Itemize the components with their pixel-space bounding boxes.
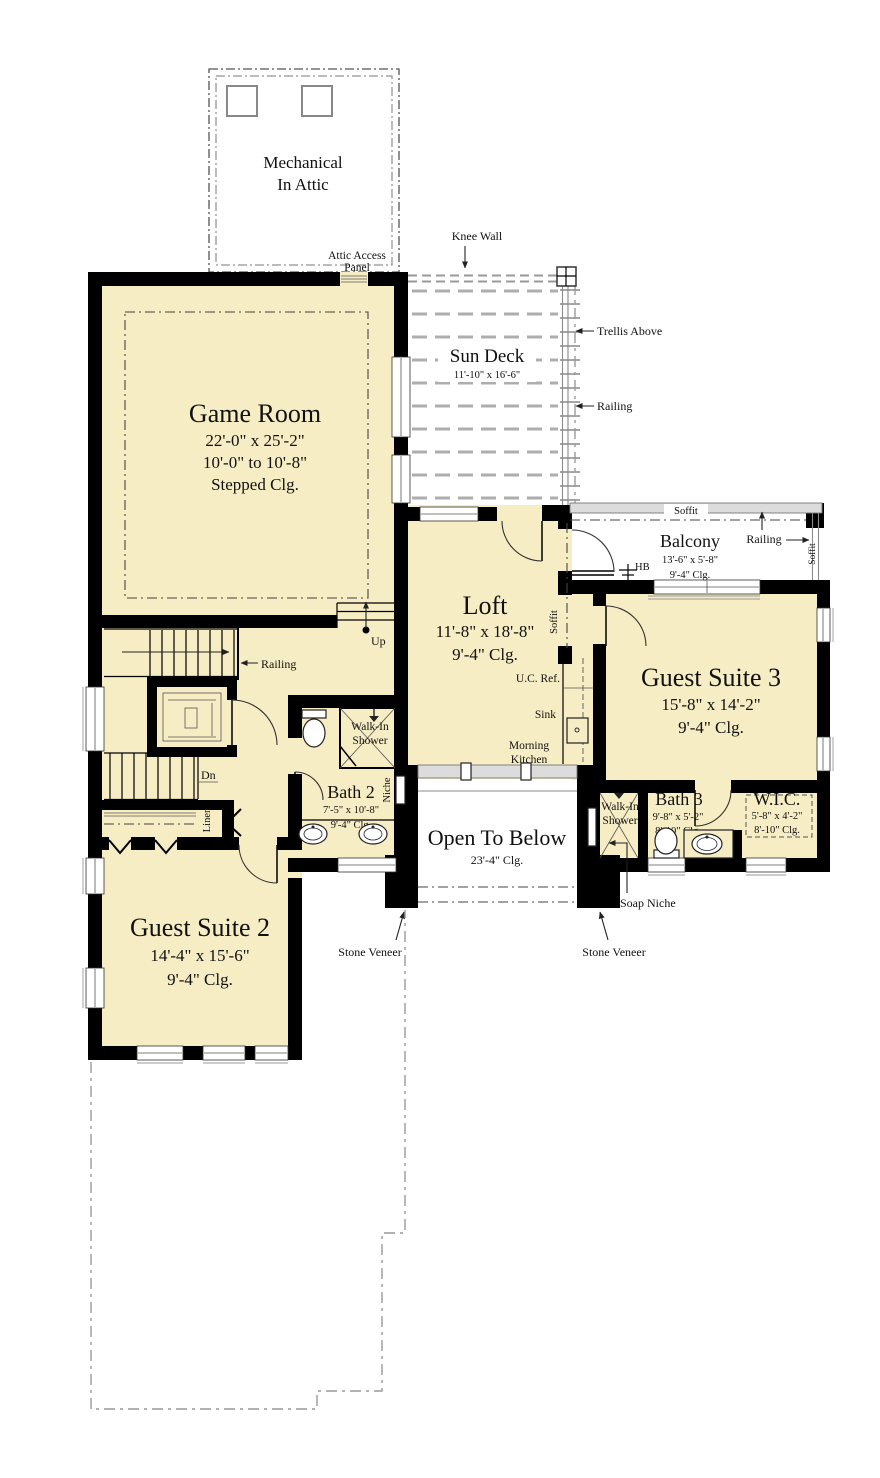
attic-unit-1 <box>227 86 257 116</box>
knee-wall-label: Knee Wall <box>452 229 503 243</box>
balcony: Soffit Soffit Balcony 13'-6" x 5'-8" 9'-… <box>570 503 822 584</box>
sun-deck-dims: 11'-10" x 16'-6" <box>454 370 520 381</box>
gs3-ceiling: 9'-4" Clg. <box>678 718 744 737</box>
ucref-label: U.C. Ref. <box>516 673 560 685</box>
gs2-name: Guest Suite 2 <box>130 913 270 942</box>
wic-name: W.I.C. <box>754 789 801 809</box>
bath3-walkin-label-1: Walk-In <box>601 801 639 813</box>
game-room-name: Game Room <box>189 399 321 428</box>
balcony-name: Balcony <box>660 531 720 551</box>
morning-label-1: Morning <box>509 740 550 752</box>
bath2-walkin-label-2: Shower <box>352 735 387 747</box>
railing-label-deck: Railing <box>597 399 632 413</box>
sink-label: Sink <box>535 709 556 721</box>
dn-label: Dn <box>201 768 216 782</box>
railing-label-balcony: Railing <box>746 532 781 546</box>
bath2-name: Bath 2 <box>327 782 375 802</box>
balcony-dims: 13'-6" x 5'-8" <box>662 555 718 566</box>
hb-label: HB <box>635 562 650 573</box>
gs3-dims: 15'-8" x 14'-2" <box>661 695 760 714</box>
wic-ceiling: 8'-10" Clg. <box>754 825 800 836</box>
balcony-ceiling: 9'-4" Clg. <box>670 570 711 581</box>
soffit-label-hall: Soffit <box>549 610 560 634</box>
loft-name: Loft <box>463 591 509 620</box>
balcony-door-arc <box>572 530 614 572</box>
soap-niche-recess <box>588 808 596 846</box>
wic-dims: 5'-8" x 4'-2" <box>752 811 803 822</box>
bath2-dims: 7'-5" x 10'-8" <box>323 805 379 816</box>
bath2-toilet <box>302 710 326 747</box>
otb-name: Open To Below <box>428 825 567 850</box>
soffit-label-balcony: Soffit <box>674 506 698 517</box>
annotation-labels: Knee Wall Trellis Above Railing <box>452 229 662 413</box>
game-room-ceiling-1: 10'-0" to 10'-8" <box>203 453 307 472</box>
attic-access-label-2: Panel <box>344 262 370 274</box>
sun-deck: Sun Deck 11'-10" x 16'-6" <box>408 267 580 507</box>
bath3-walkin-label-2: Shower <box>602 815 637 827</box>
game-room-dims: 22'-0" x 25'-2" <box>205 431 304 450</box>
mechanical-attic: Mechanical In Attic <box>209 69 399 272</box>
attic-unit-2 <box>302 86 332 116</box>
floor-plan-drawing: Mechanical In Attic <box>0 0 880 1478</box>
gs2-ceiling: 9'-4" Clg. <box>167 970 233 989</box>
otb-ceiling: 23'-4" Clg. <box>471 853 523 867</box>
gs3-name: Guest Suite 3 <box>641 663 781 692</box>
bath3-dims: 9'-8" x 5'-2" <box>653 812 704 823</box>
up-label: Up <box>371 634 386 648</box>
loft-dims: 11'-8" x 18'-8" <box>436 622 535 641</box>
bath2-niche <box>396 776 405 804</box>
soffit-label-balcony-right: Soffit <box>807 543 818 565</box>
mechanical-label-2: In Attic <box>277 175 329 194</box>
soap-niche-label: Soap Niche <box>620 896 676 910</box>
kitchen-sink <box>567 718 588 743</box>
railing-label-stair: Railing <box>261 657 296 671</box>
linen-label: Linen <box>202 807 213 832</box>
trellis-label: Trellis Above <box>597 324 662 338</box>
stone-veneer-label-left: Stone Veneer <box>338 945 401 959</box>
loft-ceiling: 9'-4" Clg. <box>452 645 518 664</box>
stone-veneer-label-right: Stone Veneer <box>582 945 645 959</box>
loft-railing-band <box>418 765 577 778</box>
sun-deck-name: Sun Deck <box>450 346 525 367</box>
floor-plan: Mechanical In Attic <box>0 0 880 1478</box>
bath3-vanity <box>684 830 733 858</box>
niche-label: Niche <box>382 777 393 802</box>
game-room-ceiling-2: Stepped Clg. <box>211 475 299 494</box>
deck-boards <box>412 291 558 498</box>
attic-access-label-1: Attic Access <box>328 250 386 262</box>
bath2-walkin-label-1: Walk-In <box>351 721 389 733</box>
mechanical-label-1: Mechanical <box>263 153 343 172</box>
gs2-dims: 14'-4" x 15'-6" <box>150 946 249 965</box>
